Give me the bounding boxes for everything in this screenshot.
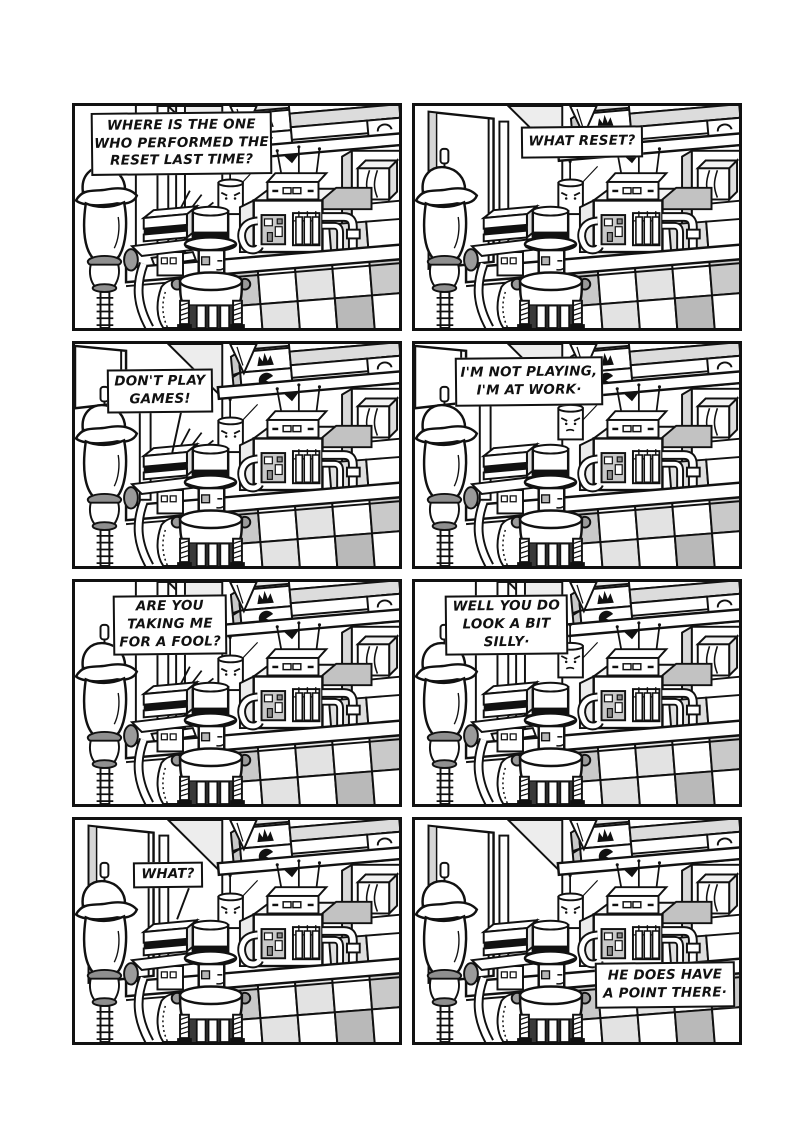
comic-panel-2: WHAT RESET? bbox=[412, 103, 742, 331]
speech-line: WHO PERFORMED THE bbox=[94, 134, 269, 154]
speech-line: GAMES! bbox=[129, 391, 190, 410]
speech-line: I'M NOT PLAYING, bbox=[460, 363, 597, 382]
speech-box: I'M NOT PLAYING,I'M AT WORK· bbox=[455, 356, 604, 407]
speech-box: HE DOES HAVEA POINT THERE· bbox=[595, 961, 735, 1008]
speech-line: FOR A FOOL? bbox=[119, 633, 221, 652]
scene-drawing bbox=[75, 820, 399, 1042]
panel-grid: WHERE IS THE ONEWHO PERFORMED THERESET L… bbox=[72, 103, 742, 1045]
speech-box: DON'T PLAYGAMES! bbox=[107, 368, 213, 413]
comic-panel-6: WELL YOU DOLOOK A BITSILLY· bbox=[412, 579, 742, 807]
speech-line: TAKING ME bbox=[127, 616, 213, 635]
speech-line: WHAT? bbox=[141, 866, 195, 885]
comic-panel-8: HE DOES HAVEA POINT THERE· bbox=[412, 817, 742, 1045]
speech-line: WHAT RESET? bbox=[528, 132, 635, 151]
scene-drawing bbox=[415, 820, 739, 1042]
speech-line: WELL YOU DO bbox=[453, 598, 561, 617]
comic-panel-4: I'M NOT PLAYING,I'M AT WORK· bbox=[412, 341, 742, 569]
comic-panel-7: WHAT? bbox=[72, 817, 402, 1045]
comic-panel-1: WHERE IS THE ONEWHO PERFORMED THERESET L… bbox=[72, 103, 402, 331]
speech-line: HE DOES HAVE bbox=[608, 966, 723, 985]
speech-box: WHAT RESET? bbox=[521, 125, 643, 158]
scene-illustration bbox=[75, 820, 399, 1042]
speech-line: SILLY· bbox=[484, 634, 530, 652]
speech-line: ARE YOU bbox=[136, 598, 204, 617]
speech-box: WHERE IS THE ONEWHO PERFORMED THERESET L… bbox=[91, 111, 273, 176]
speech-box: WHAT? bbox=[133, 862, 203, 889]
speech-line: DON'T PLAY bbox=[114, 373, 205, 392]
comic-page: { "page": { "background": "#ffffff", "in… bbox=[0, 0, 809, 1146]
speech-box: ARE YOUTAKING MEFOR A FOOL? bbox=[113, 594, 228, 655]
comic-panel-3: DON'T PLAYGAMES! bbox=[72, 341, 402, 569]
speech-line: A POINT THERE· bbox=[603, 984, 727, 1003]
speech-line: I'M AT WORK· bbox=[476, 381, 581, 400]
speech-line: WHERE IS THE ONE bbox=[107, 116, 256, 136]
speech-box: WELL YOU DOLOOK A BITSILLY· bbox=[445, 594, 569, 655]
scene-illustration bbox=[415, 820, 739, 1042]
speech-line: LOOK A BIT bbox=[462, 616, 550, 635]
comic-panel-5: ARE YOUTAKING MEFOR A FOOL? bbox=[72, 579, 402, 807]
speech-line: RESET LAST TIME? bbox=[110, 152, 253, 171]
